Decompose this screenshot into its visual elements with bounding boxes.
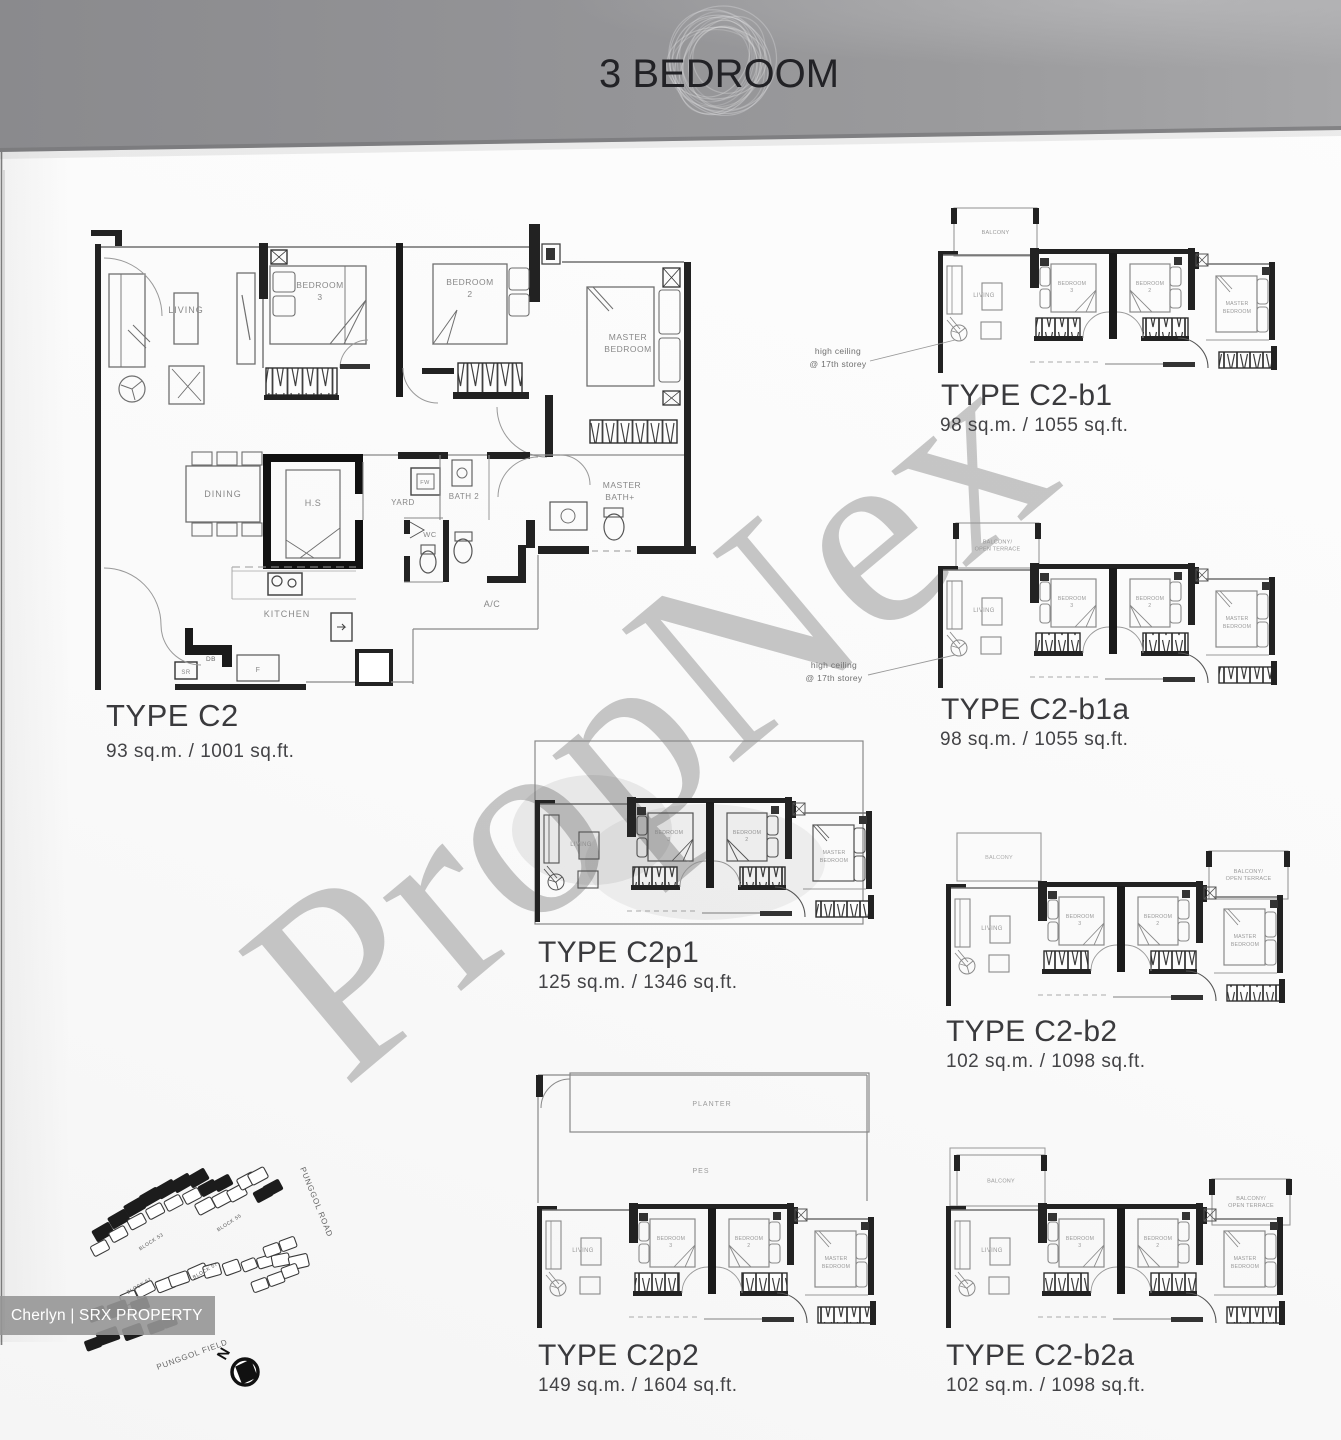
svg-text:TYPE C2-b1a: TYPE C2-b1a xyxy=(941,693,1129,726)
svg-text:BATH 2: BATH 2 xyxy=(449,492,479,501)
svg-text:TYPE C2-b1: TYPE C2-b1 xyxy=(941,379,1112,412)
svg-text:F: F xyxy=(256,667,261,674)
svg-text:KITCHEN: KITCHEN xyxy=(264,609,311,619)
svg-text:DINING: DINING xyxy=(204,489,242,499)
svg-text:BEDROOM: BEDROOM xyxy=(1144,914,1172,920)
svg-text:3 BEDROOM: 3 BEDROOM xyxy=(599,52,839,96)
svg-text:125 sq.m. / 1346 sq.ft.: 125 sq.m. / 1346 sq.ft. xyxy=(538,972,738,993)
svg-text:2: 2 xyxy=(1148,603,1151,609)
svg-text:PUNGGOL ROAD: PUNGGOL ROAD xyxy=(298,1166,334,1239)
svg-text:@ 17th storey: @ 17th storey xyxy=(806,673,863,683)
svg-text:BEDROOM: BEDROOM xyxy=(296,280,343,290)
svg-text:TYPE C2: TYPE C2 xyxy=(106,698,239,733)
svg-text:LIVING: LIVING xyxy=(973,293,995,299)
svg-text:BALCONY/: BALCONY/ xyxy=(983,540,1013,546)
svg-text:3: 3 xyxy=(1078,921,1081,927)
svg-text:MASTER: MASTER xyxy=(1234,1256,1257,1262)
svg-text:BALCONY/: BALCONY/ xyxy=(1234,869,1264,875)
svg-text:TYPE C2p2: TYPE C2p2 xyxy=(538,1339,699,1372)
svg-text:LIVING: LIVING xyxy=(168,305,204,315)
svg-text:MASTER: MASTER xyxy=(1226,301,1249,307)
svg-text:BALCONY: BALCONY xyxy=(985,855,1013,861)
svg-text:BALCONY: BALCONY xyxy=(982,230,1010,236)
svg-text:98 sq.m. / 1055 sq.ft.: 98 sq.m. / 1055 sq.ft. xyxy=(940,729,1128,750)
svg-text:BEDROOM: BEDROOM xyxy=(1223,624,1251,630)
svg-text:OPEN TERRACE: OPEN TERRACE xyxy=(1226,876,1272,882)
svg-text:LIVING: LIVING xyxy=(981,1248,1003,1254)
svg-text:H.S: H.S xyxy=(305,498,322,508)
svg-text:MASTER: MASTER xyxy=(1234,934,1257,940)
svg-text:102 sq.m. / 1098 sq.ft.: 102 sq.m. / 1098 sq.ft. xyxy=(946,1051,1146,1072)
svg-text:3: 3 xyxy=(669,1243,672,1249)
svg-text:OPEN TERRACE: OPEN TERRACE xyxy=(1228,1203,1274,1209)
svg-text:LIVING: LIVING xyxy=(572,1248,594,1254)
svg-text:SR: SR xyxy=(181,670,191,676)
svg-text:DB: DB xyxy=(206,656,216,663)
svg-text:LIVING: LIVING xyxy=(981,926,1003,932)
svg-text:BEDROOM: BEDROOM xyxy=(446,277,493,287)
svg-text:2: 2 xyxy=(1156,921,1159,927)
svg-text:BEDROOM: BEDROOM xyxy=(1066,1236,1094,1242)
svg-text:BEDROOM: BEDROOM xyxy=(1231,1264,1259,1270)
svg-text:BEDROOM: BEDROOM xyxy=(1066,914,1094,920)
svg-text:high ceiling: high ceiling xyxy=(815,346,861,356)
svg-text:3: 3 xyxy=(1070,603,1073,609)
svg-text:BEDROOM: BEDROOM xyxy=(1058,596,1086,602)
svg-text:MASTER: MASTER xyxy=(609,332,647,342)
svg-text:BEDROOM: BEDROOM xyxy=(1223,309,1251,315)
svg-text:YARD: YARD xyxy=(391,498,415,507)
svg-text:TYPE C2-b2a: TYPE C2-b2a xyxy=(946,1339,1134,1372)
svg-text:N: N xyxy=(214,1345,234,1363)
svg-text:@ 17th storey: @ 17th storey xyxy=(810,359,867,369)
svg-text:3: 3 xyxy=(1070,288,1073,294)
svg-text:102 sq.m. / 1098 sq.ft.: 102 sq.m. / 1098 sq.ft. xyxy=(946,1375,1146,1396)
svg-text:2: 2 xyxy=(1148,288,1151,294)
svg-text:WC: WC xyxy=(423,530,437,539)
svg-text:TYPE C2p1: TYPE C2p1 xyxy=(538,936,699,969)
svg-text:BEDROOM: BEDROOM xyxy=(735,1236,763,1242)
svg-text:98 sq.m. / 1055 sq.ft.: 98 sq.m. / 1055 sq.ft. xyxy=(940,415,1128,436)
svg-text:2: 2 xyxy=(747,1243,750,1249)
svg-text:BALCONY/: BALCONY/ xyxy=(1236,1196,1266,1202)
svg-text:PES: PES xyxy=(692,1168,709,1175)
svg-text:MASTER: MASTER xyxy=(823,850,846,856)
svg-text:FW: FW xyxy=(420,480,430,486)
svg-text:MASTER: MASTER xyxy=(603,480,641,490)
svg-text:TYPE C2-b2: TYPE C2-b2 xyxy=(946,1015,1117,1048)
svg-text:BEDROOM: BEDROOM xyxy=(1231,942,1259,948)
svg-text:BALCONY: BALCONY xyxy=(987,1179,1015,1185)
svg-text:PLANTER: PLANTER xyxy=(692,1101,731,1108)
svg-text:2: 2 xyxy=(1156,1243,1159,1249)
svg-text:BEDROOM: BEDROOM xyxy=(657,1236,685,1242)
svg-text:A/C: A/C xyxy=(484,599,501,609)
svg-text:BLOCK 53: BLOCK 53 xyxy=(138,1232,165,1252)
svg-text:BLOCK 55: BLOCK 55 xyxy=(216,1213,243,1233)
svg-text:BEDROOM: BEDROOM xyxy=(1136,281,1164,287)
svg-text:BATH+: BATH+ xyxy=(605,492,635,502)
svg-text:high ceiling: high ceiling xyxy=(811,660,857,670)
svg-text:LIVING: LIVING xyxy=(973,608,995,614)
svg-text:3: 3 xyxy=(1078,1243,1081,1249)
svg-text:OPEN TERRACE: OPEN TERRACE xyxy=(975,547,1021,553)
svg-text:BEDROOM: BEDROOM xyxy=(1144,1236,1172,1242)
svg-text:MASTER: MASTER xyxy=(1226,616,1249,622)
svg-text:BEDROOM: BEDROOM xyxy=(1136,596,1164,602)
svg-text:MASTER: MASTER xyxy=(825,1256,848,1262)
svg-text:149 sq.m. / 1604 sq.ft.: 149 sq.m. / 1604 sq.ft. xyxy=(538,1375,738,1396)
svg-text:2: 2 xyxy=(467,289,472,299)
svg-text:BEDROOM: BEDROOM xyxy=(604,344,651,354)
svg-text:3: 3 xyxy=(317,292,322,302)
svg-text:93 sq.m. / 1001 sq.ft.: 93 sq.m. / 1001 sq.ft. xyxy=(106,741,294,762)
svg-text:BEDROOM: BEDROOM xyxy=(1058,281,1086,287)
svg-text:BEDROOM: BEDROOM xyxy=(822,1264,850,1270)
